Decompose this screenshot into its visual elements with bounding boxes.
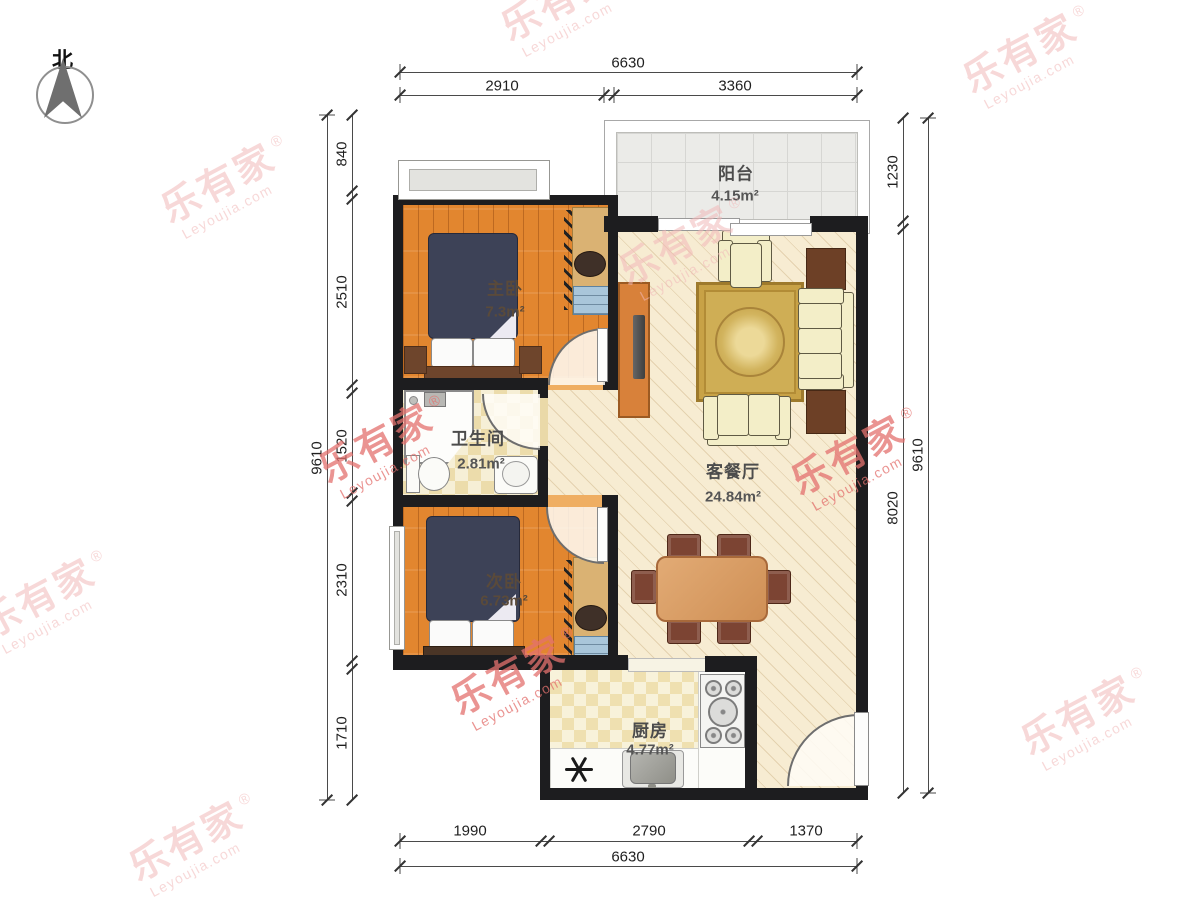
watermark-cn: 乐有家®: [0, 545, 118, 645]
sofa-cushion: [798, 303, 842, 329]
master-area: 7.3m²: [485, 304, 524, 321]
watermark-cn-text: 乐有家: [155, 137, 283, 232]
living-area-unit: m²: [743, 489, 761, 506]
watermark-en: Leyoujia.com: [148, 823, 274, 899]
dim-line-left-segments: [352, 115, 353, 800]
dim-line-left-total: [327, 115, 328, 800]
second-area-value: 6.73: [480, 593, 509, 610]
loveseat: [703, 392, 791, 446]
stove-burner: [705, 727, 722, 744]
wall: [393, 495, 545, 507]
watermark-cn-text: 乐有家: [123, 795, 251, 890]
master-door-leaf: [597, 328, 608, 382]
dim-top-total: 6630: [608, 55, 647, 72]
master-area-value: 7.3: [485, 304, 506, 321]
watermark-en: Leyoujia.com: [180, 165, 306, 241]
balcony-area-unit: m²: [740, 188, 758, 205]
dim-right-seg2: 8020: [885, 488, 902, 527]
watermark-cn-text: 乐有家: [957, 7, 1085, 102]
sofa: [796, 288, 854, 390]
dining-table: [656, 556, 768, 622]
living-area: 24.84m²: [705, 489, 761, 506]
dim-left-seg4: 2310: [334, 560, 351, 599]
watermark-reg: ®: [898, 402, 918, 424]
wall: [393, 378, 548, 390]
loveseat-cushion: [717, 394, 749, 436]
rug-medallion: [715, 307, 785, 377]
second-label: 次卧: [486, 568, 522, 593]
watermark-cn: 乐有家®: [1016, 662, 1158, 762]
dining-chair: [667, 619, 701, 644]
master-dresser: [573, 286, 610, 315]
wall: [393, 655, 628, 670]
dim-bottom-seg2: 2790: [629, 823, 668, 840]
wall: [608, 495, 618, 668]
master-area-unit: m²: [506, 304, 524, 321]
master-window: [398, 160, 550, 200]
dim-line-right-total: [928, 118, 929, 793]
wall: [745, 656, 757, 790]
balcony-slider-panel: [730, 223, 812, 236]
dim-bottom-total: 6630: [608, 849, 647, 866]
watermark-reg: ®: [88, 545, 108, 567]
watermark-cn-text: 乐有家: [495, 0, 623, 50]
entrance-door-leaf: [854, 712, 869, 786]
dim-right-total: 9610: [910, 435, 927, 474]
loveseat-cushion: [748, 394, 780, 436]
dim-left-seg1: 840: [334, 138, 351, 169]
master-nightstand: [519, 346, 542, 374]
watermark: 乐有家® Leyoujia.com: [156, 130, 306, 244]
second-area: 6.73m²: [480, 593, 528, 610]
bathroom-area-unit: m²: [486, 456, 504, 473]
second-door-threshold: [545, 495, 602, 507]
watermark: 乐有家® Leyoujia.com: [1016, 662, 1166, 776]
wall: [810, 216, 868, 232]
stove-burner: [725, 680, 742, 697]
master-nightstand: [404, 346, 427, 374]
kitchen-area-unit: m²: [655, 742, 673, 759]
kitchen-area: 4.77m²: [626, 742, 674, 759]
shower-drain: [409, 396, 418, 405]
watermark-reg: ®: [1128, 662, 1148, 684]
rug: [696, 282, 804, 402]
kitchen-opening-threshold: [628, 658, 707, 672]
watermark: 乐有家® Leyoujia.com: [0, 545, 125, 659]
watermark: 乐有家® Leyoujia.com: [124, 788, 274, 900]
wall: [856, 784, 868, 800]
second-area-unit: m²: [509, 593, 527, 610]
dining-chair: [765, 570, 791, 604]
dim-bottom-seg3: 1370: [786, 823, 825, 840]
shower-head: [424, 392, 446, 407]
dim-bottom-seg1: 1990: [450, 823, 489, 840]
stove: [700, 674, 745, 748]
second-desk-chair: [575, 605, 607, 631]
dim-left-seg3: 1520: [334, 426, 351, 465]
watermark-cn: 乐有家®: [156, 130, 298, 230]
watermark-reg: ®: [1070, 0, 1090, 22]
corridor-floor: [548, 390, 618, 497]
watermark-reg: ®: [236, 788, 256, 810]
watermark: 乐有家® Leyoujia.com: [496, 0, 646, 62]
dim-left-seg5: 1710: [334, 713, 351, 752]
sofa-arm: [798, 288, 844, 304]
dim-left-seg2: 2510: [334, 272, 351, 311]
dim-top-seg2: 3360: [715, 78, 754, 95]
master-window-glass: [409, 169, 537, 191]
toilet-bowl: [418, 457, 450, 491]
dim-line-bottom-segments: [400, 841, 857, 842]
side-table: [806, 390, 846, 434]
stove-burner: [725, 727, 742, 744]
watermark-reg: ®: [268, 130, 288, 152]
floor-plan-canvas: 北 6630 2910 3360 9610 840 2510 1520 2310…: [0, 0, 1200, 900]
armchair-seat: [730, 243, 762, 288]
dim-top-seg1: 2910: [482, 78, 521, 95]
wall: [540, 788, 868, 800]
master-desk-chair: [574, 251, 606, 277]
balcony-area: 4.15m²: [711, 188, 759, 205]
balcony-slider-panel: [658, 218, 740, 231]
watermark-cn: 乐有家®: [958, 0, 1100, 100]
bathroom-label: 卫生间: [451, 425, 505, 450]
balcony-area-value: 4.15: [711, 188, 740, 205]
armchair: [718, 230, 772, 288]
dim-left-total: 9610: [309, 438, 326, 477]
second-window-glass: [394, 531, 400, 645]
watermark-cn: 乐有家®: [496, 0, 638, 48]
sofa-cushion: [798, 353, 842, 379]
watermark-en: Leyoujia.com: [1040, 697, 1166, 773]
second-wardrobe: [564, 560, 572, 660]
living-area-value: 24.84: [705, 489, 743, 506]
watermark-en: Leyoujia.com: [520, 0, 646, 59]
kitchen-area-value: 4.77: [626, 742, 655, 759]
floor-drain-icon: [565, 756, 593, 784]
master-wardrobe: [564, 210, 572, 310]
dining-chair: [631, 570, 657, 604]
dim-line-bottom-total: [400, 866, 857, 867]
sofa-cushion: [798, 328, 842, 354]
watermark-cn: 乐有家®: [124, 788, 266, 888]
dim-right-seg1: 1230: [885, 152, 902, 191]
master-label: 主卧: [487, 275, 523, 300]
wall: [856, 216, 868, 715]
tv: [633, 315, 645, 379]
watermark-en: Leyoujia.com: [982, 35, 1108, 111]
watermark-en: Leyoujia.com: [0, 580, 125, 656]
balcony-label: 阳台: [718, 160, 754, 185]
watermark-cn-text: 乐有家: [0, 552, 103, 647]
bathroom-sink-basin: [502, 461, 530, 487]
stove-burner: [708, 697, 738, 727]
kitchen-label: 厨房: [632, 717, 668, 742]
second-window: [389, 526, 405, 650]
dim-line-top-segments: [400, 95, 857, 96]
side-table: [806, 248, 846, 290]
bathroom-area: 2.81m²: [457, 456, 505, 473]
dining-chair: [717, 619, 751, 644]
second-door-leaf: [597, 507, 608, 562]
dim-line-top-total: [400, 72, 857, 73]
master-bed-pillow: [473, 338, 515, 368]
bathroom-area-value: 2.81: [457, 456, 486, 473]
wall: [540, 670, 550, 790]
watermark: 乐有家® Leyoujia.com: [958, 0, 1108, 114]
master-bed-pillow: [431, 338, 473, 368]
watermark-cn-text: 乐有家: [1015, 669, 1143, 764]
wall: [604, 216, 658, 232]
stove-burner: [705, 680, 722, 697]
living-label: 客餐厅: [706, 458, 760, 483]
